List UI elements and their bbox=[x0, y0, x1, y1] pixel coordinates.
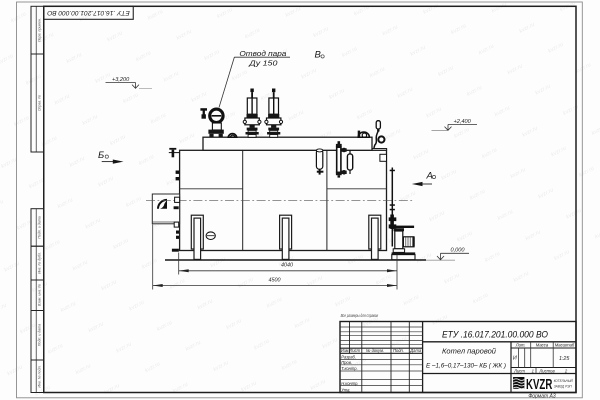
svg-text:Б: Б bbox=[98, 150, 104, 161]
svg-text:Т.контр.: Т.контр. bbox=[341, 366, 358, 371]
svg-text:Е –1,6–0,17–130– КБ ( ЖК ): Е –1,6–0,17–130– КБ ( ЖК ) bbox=[426, 363, 506, 370]
svg-text:КОТЕЛЬНЫЙ: КОТЕЛЬНЫЙ bbox=[554, 379, 573, 383]
svg-text:Инв. № подл.: Инв. № подл. bbox=[38, 365, 42, 387]
svg-text:Пров.: Пров. bbox=[341, 360, 352, 365]
svg-text:ЗАВОД РЭП: ЗАВОД РЭП bbox=[554, 385, 572, 389]
svg-text:4500: 4500 bbox=[269, 277, 281, 283]
svg-text:Все размеры для справок: Все размеры для справок bbox=[341, 313, 379, 318]
svg-text:Отвод пара: Отвод пара bbox=[239, 49, 286, 58]
svg-text:Утв.: Утв. bbox=[341, 387, 350, 392]
svg-text:Масса: Масса bbox=[536, 342, 549, 347]
svg-text:1:25: 1:25 bbox=[559, 356, 570, 362]
svg-text:KVZR: KVZR bbox=[526, 377, 553, 393]
svg-text:А: А bbox=[426, 171, 433, 182]
svg-text:И: И bbox=[513, 356, 517, 362]
svg-text:4040: 4040 bbox=[281, 263, 293, 269]
svg-text:Инв. № дубл.: Инв. № дубл. bbox=[38, 252, 42, 274]
svg-text:Подп.: Подп. bbox=[393, 348, 404, 353]
svg-text:№ докум.: № докум. bbox=[366, 348, 384, 353]
svg-text:Разраб.: Разраб. bbox=[341, 355, 356, 360]
svg-text:Лит.: Лит. bbox=[515, 342, 526, 347]
svg-text:Изм.Лист: Изм.Лист bbox=[341, 348, 361, 353]
svg-text:Перв. примен.: Перв. примен. bbox=[38, 18, 42, 42]
svg-text:Н.контр.: Н.контр. bbox=[341, 381, 358, 386]
svg-text:Масштаб: Масштаб bbox=[555, 342, 575, 347]
svg-text:Листов: Листов bbox=[538, 368, 555, 373]
svg-text:+2,400: +2,400 bbox=[454, 119, 472, 125]
svg-text:Лист: Лист bbox=[513, 368, 525, 373]
svg-text:+3,200: +3,200 bbox=[112, 77, 130, 83]
svg-text:0,000: 0,000 bbox=[451, 247, 466, 253]
svg-text:ЕТУ .16.017.201.00.000 ВО: ЕТУ .16.017.201.00.000 ВО bbox=[47, 9, 130, 16]
svg-text:ЕТУ .16.017.201.00.000 ВО: ЕТУ .16.017.201.00.000 ВО bbox=[442, 330, 548, 340]
svg-text:Подп. и дата: Подп. и дата bbox=[38, 324, 42, 347]
svg-text:В: В bbox=[315, 50, 322, 61]
svg-text:1: 1 bbox=[532, 368, 534, 373]
svg-text:Формат А3: Формат А3 bbox=[528, 394, 556, 400]
svg-text:Дата: Дата bbox=[409, 348, 422, 353]
svg-text:Ду 150: Ду 150 bbox=[248, 59, 277, 68]
svg-text:Котел паровой: Котел паровой bbox=[442, 348, 496, 356]
svg-text:Справ. №: Справ. № bbox=[38, 95, 42, 111]
svg-text:Подп. и дата: Подп. и дата bbox=[38, 216, 42, 239]
svg-text:Взам. инв. №: Взам. инв. № bbox=[38, 284, 42, 306]
